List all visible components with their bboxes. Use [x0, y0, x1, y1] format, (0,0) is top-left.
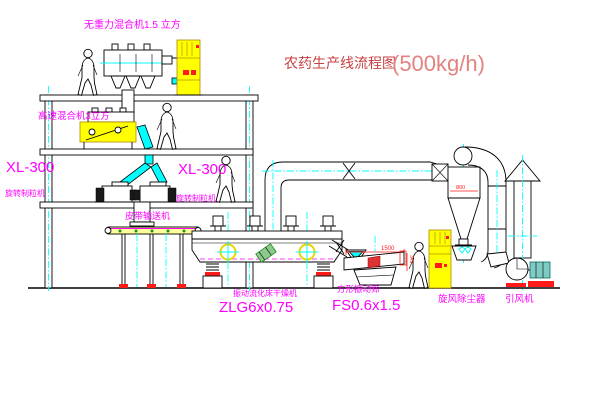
dim-screen-length: 1500	[381, 246, 395, 252]
label-screen-name: 方形振动筛	[337, 284, 380, 294]
dim-screen-height: 341	[408, 255, 414, 264]
bucket-elevator-2	[429, 230, 451, 288]
person-figure	[409, 242, 428, 288]
label-belt-conveyor: 皮带输送机	[125, 210, 170, 221]
label-fan: 引风机	[505, 293, 534, 305]
label-cyclone: 旋风除尘器	[438, 293, 486, 305]
label-granulator-left-model: XL-300	[6, 159, 54, 176]
label-granulator-left-name: 旋转制粒机	[5, 188, 45, 198]
rotary-granulator-left	[94, 182, 138, 202]
gravity-free-mixer	[100, 44, 180, 112]
label-granulator-right-name: 旋转制粒机	[176, 193, 216, 203]
person-figure	[78, 49, 97, 95]
y-chute	[120, 155, 167, 186]
diagram-title: 农药生产线流程图	[284, 55, 396, 71]
induced-draft-fan	[506, 258, 554, 287]
label-top-mixer: 无重力混合机1.5 立方	[84, 18, 181, 31]
label-mid-mixer: 高速混合机3立方	[38, 110, 110, 122]
belt-conveyor	[105, 227, 201, 288]
label-screen-model: FS0.6x1.5	[332, 297, 400, 314]
label-dryer-model: ZLG6x0.75	[219, 299, 293, 316]
rotary-granulator-right	[132, 182, 178, 202]
label-dryer-name: 振动流化床干燥机	[233, 288, 297, 298]
square-vibrating-screen	[344, 236, 407, 285]
fluid-bed-dryer	[192, 212, 342, 288]
cad-drawing-canvas: 农药生产线流程图 (500kg/h) 无重力混合机1.5 立方 高速混合机3立方…	[0, 0, 600, 403]
dim-cyclone-width: 800	[456, 185, 465, 191]
diagram-capacity: (500kg/h)	[392, 51, 485, 76]
bucket-elevator-1	[174, 40, 203, 95]
person-figure	[157, 103, 176, 149]
process-flow-diagram: 农药生产线流程图 (500kg/h) 无重力混合机1.5 立方 高速混合机3立方…	[0, 0, 600, 403]
label-granulator-right-model: XL-300	[178, 161, 226, 178]
